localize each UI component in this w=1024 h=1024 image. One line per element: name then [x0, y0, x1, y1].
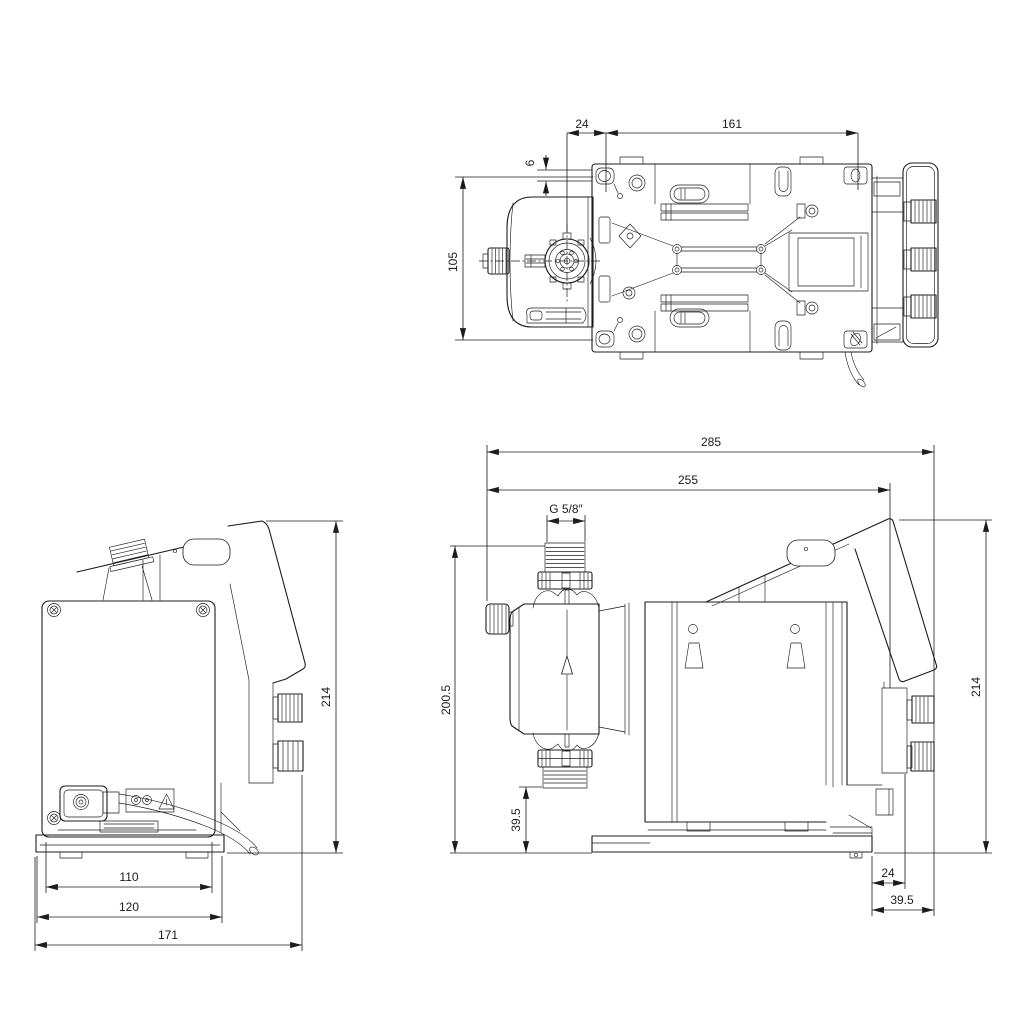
dim-label-105: 105	[446, 252, 460, 272]
dim-label-255: 255	[678, 473, 698, 487]
dim-label-39-5-valve: 39.5	[509, 808, 523, 832]
side-view-rear-panel	[882, 688, 934, 773]
dim-label-thread: G 5/8″	[549, 502, 583, 516]
rear-view-bracket	[221, 783, 240, 833]
top-view-pump-head	[479, 224, 601, 302]
dim-label-200-5: 200.5	[439, 685, 453, 715]
top-view-mounting-plate	[592, 157, 872, 359]
rear-view-cable-glands	[273, 694, 303, 771]
top-view-cable	[845, 352, 867, 388]
side-view: 285 255 G 5/8″ 200.5 39.5 214 24 39.5	[439, 435, 992, 916]
side-view-body	[645, 602, 847, 831]
dim-label-110: 110	[119, 870, 138, 884]
side-view-wall-bracket	[830, 785, 893, 852]
top-view: 24 161 6 105	[446, 117, 938, 388]
dim-label-171: 171	[158, 928, 178, 942]
dim-label-120: 120	[119, 900, 139, 914]
dim-label-rear-214: 214	[319, 687, 333, 707]
dim-label-24: 24	[575, 117, 589, 131]
top-view-motor-cap	[507, 197, 593, 327]
side-view-control-cover	[706, 519, 937, 688]
dim-label-6: 6	[523, 159, 537, 166]
rear-view: 214 110 120 171	[35, 521, 343, 951]
side-view-dosing-head	[486, 543, 629, 788]
cable-gland-top-3	[904, 295, 936, 318]
dim-label-side-39-5: 39.5	[890, 893, 914, 907]
cable-gland-top-2	[904, 248, 936, 271]
dim-label-285: 285	[701, 435, 721, 449]
pump-dimensional-drawing: 24 161 6 105	[0, 0, 1024, 1024]
rear-view-inlet-plug	[103, 538, 177, 600]
dim-label-side-214: 214	[969, 677, 983, 697]
dim-label-side-24: 24	[881, 866, 895, 880]
side-view-dimensions: 285 255 G 5/8″ 200.5 39.5 214 24 39.5	[439, 435, 992, 916]
rear-view-motor-box	[42, 601, 215, 837]
drawing-canvas: 24 161 6 105	[0, 0, 1024, 1024]
top-view-control-end	[872, 163, 938, 347]
side-view-base	[592, 830, 872, 858]
cable-gland-top-1	[904, 200, 936, 223]
dim-label-161: 161	[722, 117, 742, 131]
